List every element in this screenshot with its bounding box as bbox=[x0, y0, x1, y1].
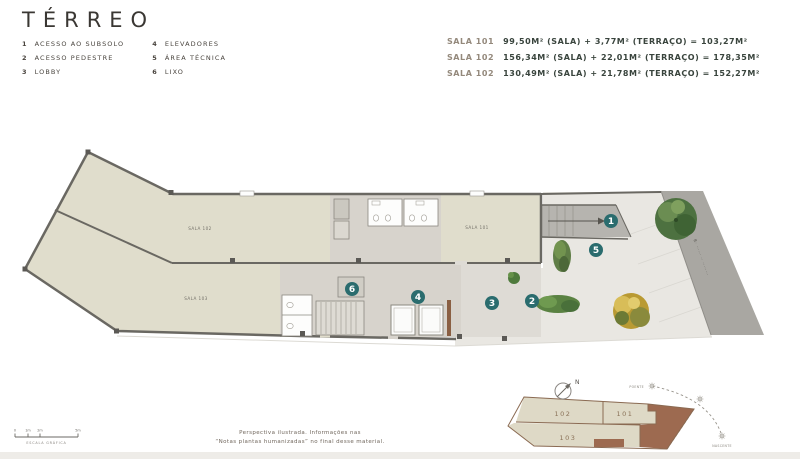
disclaimer-line-2: “Notas plantas humanizadas” no final des… bbox=[170, 438, 430, 447]
wood-wall bbox=[447, 300, 451, 336]
north-label: N bbox=[575, 379, 580, 386]
toilet-icon bbox=[287, 323, 293, 328]
lobby-plant bbox=[508, 272, 520, 284]
sun-icon bbox=[649, 383, 656, 390]
svg-text:6: 6 bbox=[349, 285, 355, 295]
toilet-icon bbox=[409, 215, 414, 221]
svg-text:3: 3 bbox=[489, 299, 495, 309]
keyplan-core-notch bbox=[594, 439, 624, 447]
restroom-2 bbox=[404, 199, 438, 226]
room-label-sala-101: SALA 101 bbox=[465, 225, 488, 230]
page: TÉRREO 1ACESSO AO SUBSOLO 2ACESSO PEDEST… bbox=[0, 0, 800, 459]
bottom-strip bbox=[0, 452, 800, 459]
scale-tick-5m: 5m bbox=[75, 429, 81, 433]
street-tree bbox=[655, 198, 697, 240]
sun-label-east: NASCENTE bbox=[712, 444, 732, 448]
scale-tick-1m: 1m bbox=[25, 429, 31, 433]
svg-text:5: 5 bbox=[593, 246, 599, 256]
keyplan-label-101: 101 bbox=[617, 410, 634, 418]
keyplan-label-102: 102 bbox=[555, 410, 572, 418]
restroom-3 bbox=[282, 295, 312, 336]
marker-6-lixo: 6 bbox=[345, 282, 359, 296]
hedge bbox=[553, 240, 571, 272]
scale-tick-2m: 2m bbox=[37, 429, 43, 433]
marker-4-elevadores: 4 bbox=[411, 290, 425, 304]
room-label-sala-103: SALA 103 bbox=[184, 296, 207, 301]
scale-bar: 0 1m 2m 5m ESCALA GRÁFICA bbox=[14, 429, 82, 446]
svg-text:4: 4 bbox=[415, 293, 421, 303]
restroom-1 bbox=[368, 199, 402, 226]
sun-icon bbox=[719, 433, 726, 440]
elevator-shaft-2 bbox=[419, 305, 443, 335]
elevator-shaft-1 bbox=[391, 305, 415, 335]
keyplan: 102 101 103 N bbox=[508, 379, 732, 449]
floorplan-drawing: R· ······ ·· ········ bbox=[0, 0, 800, 459]
disclaimer-line-1: Perspectiva ilustrada. Informações nas bbox=[170, 429, 430, 438]
marker-3-lobby: 3 bbox=[485, 296, 499, 310]
svg-text:1: 1 bbox=[608, 217, 614, 227]
stairs bbox=[316, 301, 364, 335]
scale-caption: ESCALA GRÁFICA bbox=[26, 440, 66, 445]
toilet-icon bbox=[287, 302, 293, 307]
north-compass-icon: N bbox=[555, 379, 580, 399]
marker-2-acesso-pedestre: 2 bbox=[525, 294, 539, 308]
sun-icon bbox=[697, 396, 704, 403]
room-label-sala-102: SALA 102 bbox=[188, 226, 211, 231]
scale-tick-0: 0 bbox=[14, 429, 16, 433]
sun-label-west: POENTE bbox=[629, 385, 644, 389]
entry-bush bbox=[536, 295, 580, 313]
toilet-icon bbox=[385, 215, 390, 221]
keyplan-label-103: 103 bbox=[560, 434, 577, 442]
marker-1-acesso-subsolo: 1 bbox=[604, 214, 618, 228]
marker-5-area-tecnica: 5 bbox=[589, 243, 603, 257]
disclaimer: Perspectiva ilustrada. Informações nas “… bbox=[170, 429, 430, 447]
toilet-icon bbox=[421, 215, 426, 221]
toilet-icon bbox=[373, 215, 378, 221]
svg-text:2: 2 bbox=[529, 297, 535, 307]
